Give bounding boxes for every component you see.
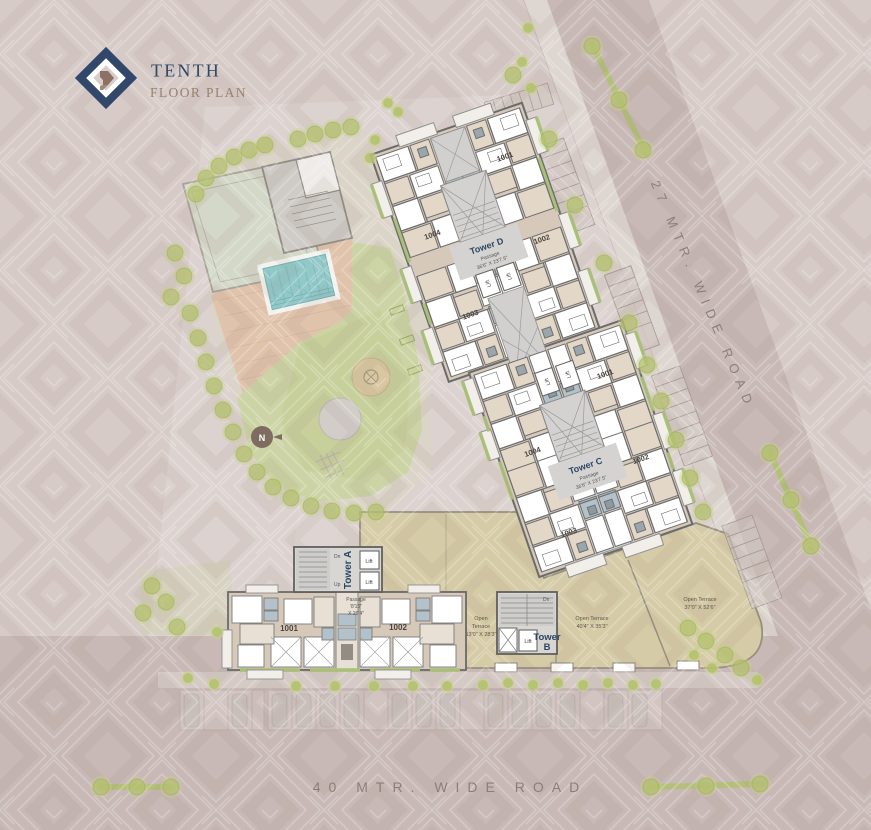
svg-text:1002: 1002 — [389, 623, 407, 632]
svg-text:Tower A: Tower A — [343, 551, 354, 589]
svg-text:40'4" X 35'3": 40'4" X 35'3" — [576, 624, 607, 630]
svg-text:13'0" X 28'3": 13'0" X 28'3" — [465, 632, 496, 638]
svg-text:TENTH: TENTH — [151, 61, 221, 81]
svg-text:FLOOR PLAN: FLOOR PLAN — [150, 85, 247, 100]
svg-text:B: B — [544, 642, 551, 653]
svg-text:1001: 1001 — [280, 624, 298, 633]
svg-text:40 MTR. WIDE ROAD: 40 MTR. WIDE ROAD — [313, 779, 587, 795]
svg-text:X 26'4": X 26'4" — [348, 611, 364, 617]
svg-text:Up: Up — [334, 582, 341, 588]
svg-text:Open: Open — [474, 616, 487, 622]
svg-text:Dn: Dn — [543, 597, 550, 603]
svg-text:Terrace: Terrace — [472, 624, 490, 630]
svg-text:Dn: Dn — [334, 554, 341, 560]
svg-text:N: N — [259, 433, 266, 443]
svg-text:37'0" X 52'6": 37'0" X 52'6" — [684, 605, 715, 611]
svg-text:Lift: Lift — [524, 639, 532, 645]
svg-text:Lift: Lift — [365, 559, 373, 565]
svg-text:Open Terrace: Open Terrace — [575, 616, 608, 622]
svg-text:Open Terrace: Open Terrace — [683, 597, 716, 603]
svg-text:Passage: Passage — [346, 597, 366, 603]
svg-text:Lift: Lift — [365, 580, 373, 586]
svg-text:'8'15": '8'15" — [350, 604, 362, 610]
